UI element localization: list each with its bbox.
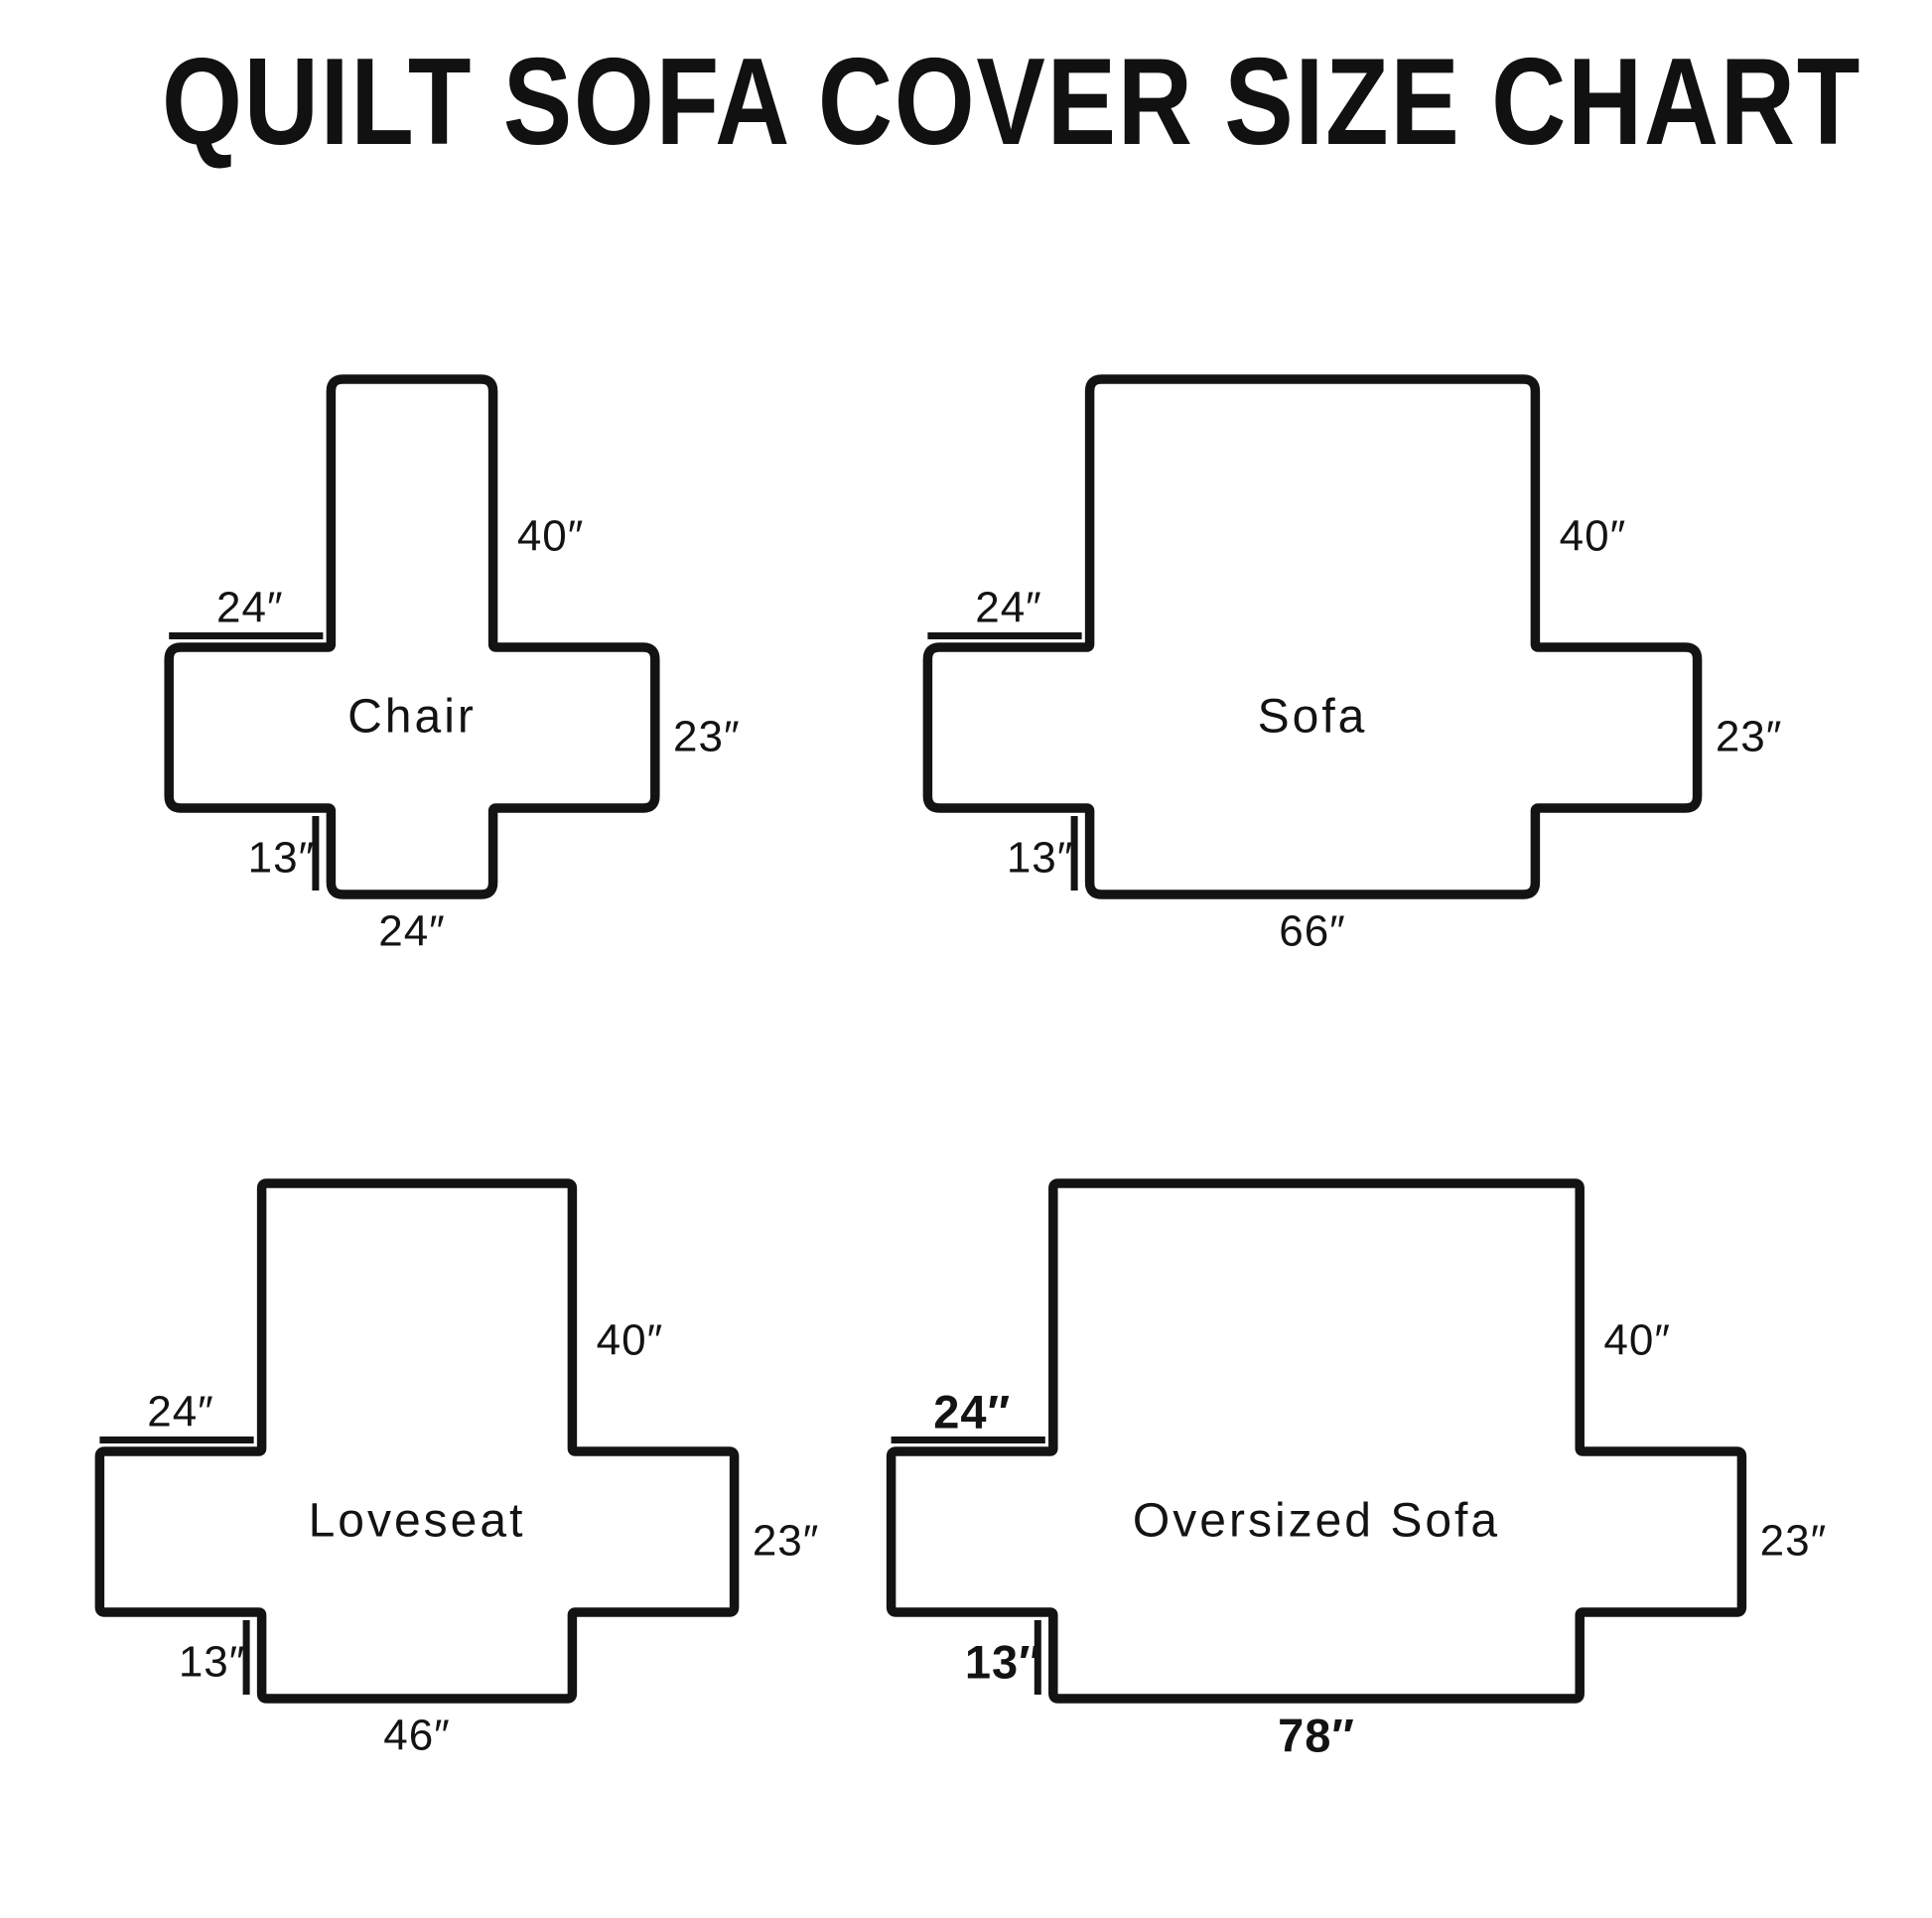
- chair-arm-height-label: 23″: [673, 713, 741, 761]
- oversized-sofa-diagram: 40″24″Oversized Sofa23″13″78″: [892, 1183, 1828, 1762]
- page-title: QUILT SOFA COVER SIZE CHART: [0, 38, 1932, 167]
- oversized-sofa-bottom-width-label: 78″: [1278, 1710, 1355, 1762]
- size-chart-page: QUILT SOFA COVER SIZE CHART 40″24″Chair2…: [0, 0, 1932, 1918]
- chair-bottom-width-label: 24″: [378, 907, 446, 956]
- loveseat-arm-height-label: 23″: [753, 1517, 820, 1566]
- sofa-flap-height-label: 13″: [1007, 834, 1074, 883]
- loveseat-arm-depth-tick: [99, 1437, 253, 1443]
- size-chart-canvas: 40″24″Chair23″13″24″40″24″Sofa23″13″66″4…: [0, 0, 1932, 1918]
- oversized-sofa-flap-height-label: 13″: [965, 1636, 1042, 1689]
- loveseat-name-label: Loveseat: [309, 1495, 526, 1548]
- oversized-sofa-arm-depth-label: 24″: [933, 1386, 1011, 1438]
- loveseat-bottom-width-label: 46″: [383, 1712, 451, 1760]
- loveseat-back-height-label: 40″: [597, 1316, 664, 1365]
- chair-flap-height-label: 13″: [248, 834, 316, 883]
- chair-arm-depth-label: 24″: [216, 584, 284, 632]
- chair-back-height-label: 40″: [517, 512, 585, 561]
- sofa-name-label: Sofa: [1258, 691, 1368, 744]
- loveseat-arm-depth-label: 24″: [147, 1388, 214, 1437]
- page-title-text: QUILT SOFA COVER SIZE CHART: [162, 38, 1862, 167]
- sofa-arm-depth-tick: [927, 632, 1081, 639]
- oversized-sofa-arm-height-label: 23″: [1760, 1517, 1828, 1566]
- sofa-back-height-label: 40″: [1560, 512, 1627, 561]
- sofa-arm-depth-label: 24″: [975, 584, 1042, 632]
- chair-arm-depth-tick: [169, 632, 323, 639]
- loveseat-diagram: 40″24″Loveseat23″13″46″: [99, 1183, 819, 1760]
- chair-diagram: 40″24″Chair23″13″24″: [169, 379, 740, 956]
- sofa-arm-height-label: 23″: [1716, 713, 1783, 761]
- oversized-sofa-back-height-label: 40″: [1603, 1316, 1671, 1365]
- loveseat-flap-height-label: 13″: [179, 1638, 246, 1687]
- sofa-bottom-width-label: 66″: [1279, 907, 1346, 956]
- oversized-sofa-name-label: Oversized Sofa: [1133, 1495, 1500, 1548]
- sofa-diagram: 40″24″Sofa23″13″66″: [927, 379, 1782, 956]
- chair-name-label: Chair: [347, 691, 477, 744]
